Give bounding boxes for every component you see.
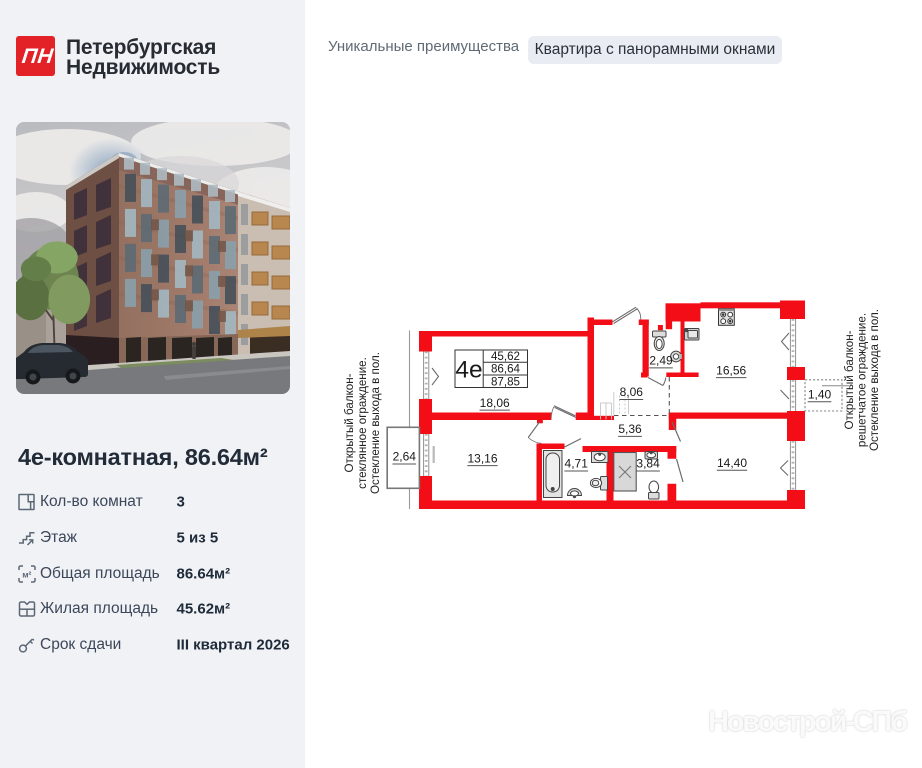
- svg-text:Остекление выхода в пол.: Остекление выхода в пол.: [868, 309, 881, 451]
- svg-text:решетчатое ограждение.: решетчатое ограждение.: [856, 313, 869, 447]
- svg-text:Открытый балкон-: Открытый балкон-: [843, 330, 856, 429]
- svg-text:4,71: 4,71: [565, 457, 589, 471]
- svg-text:Открытый балкон-: Открытый балкон-: [343, 373, 356, 472]
- svg-text:м²: м²: [22, 569, 31, 579]
- svg-text:14,40: 14,40: [717, 456, 747, 470]
- svg-text:18,06: 18,06: [480, 396, 510, 410]
- svg-text:87,85: 87,85: [491, 375, 520, 388]
- svg-text:8,06: 8,06: [620, 385, 644, 399]
- svg-text:86,64: 86,64: [491, 363, 521, 376]
- svg-text:16,56: 16,56: [716, 363, 746, 377]
- svg-text:45,62: 45,62: [491, 350, 520, 363]
- svg-text:5,36: 5,36: [618, 422, 642, 436]
- svg-text:Остекление выхода в пол.: Остекление выхода в пол.: [369, 352, 382, 494]
- svg-text:4е: 4е: [455, 357, 482, 384]
- svg-text:3,84: 3,84: [636, 457, 660, 471]
- svg-text:1,40: 1,40: [808, 388, 832, 402]
- svg-text:стеклянное ограждение.: стеклянное ограждение.: [356, 357, 369, 489]
- svg-text:2,64: 2,64: [393, 450, 417, 464]
- svg-text:13,16: 13,16: [467, 451, 497, 465]
- svg-text:2,49: 2,49: [649, 354, 673, 368]
